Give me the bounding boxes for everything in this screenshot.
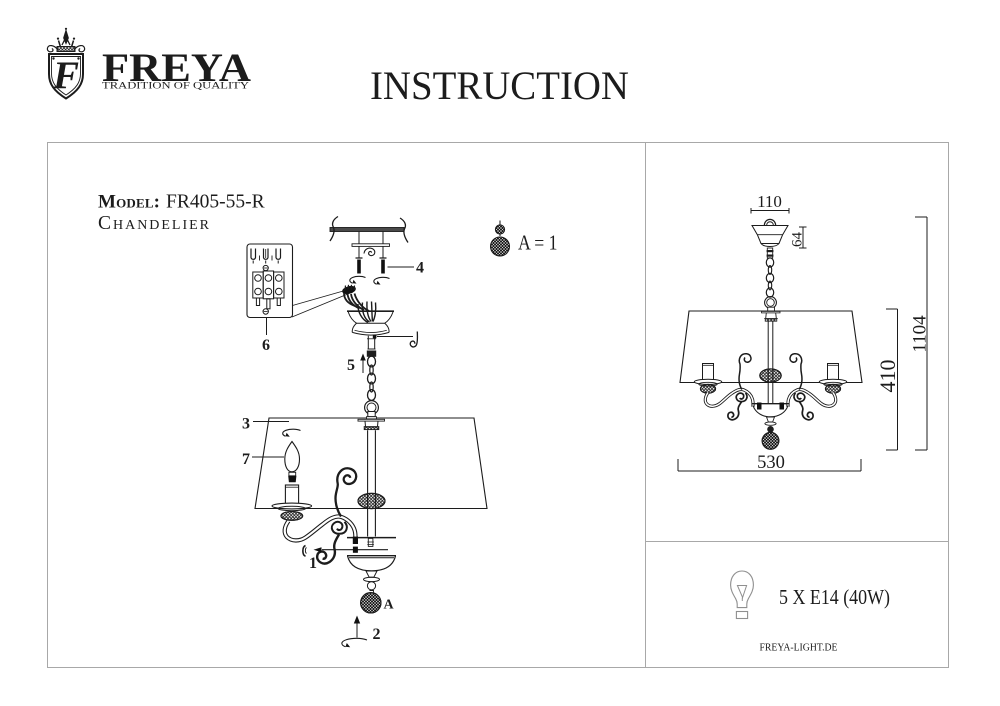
svg-text:4: 4 — [416, 260, 424, 277]
svg-text:Chandelier: Chandelier — [98, 213, 210, 234]
svg-text:7: 7 — [242, 451, 250, 468]
svg-text:INSTRUCTION: INSTRUCTION — [370, 63, 629, 108]
svg-text:FR405-55-R: FR405-55-R — [166, 192, 265, 213]
svg-text:3: 3 — [242, 416, 250, 433]
svg-text:A = 1: A = 1 — [518, 231, 558, 255]
svg-text:1: 1 — [309, 555, 317, 572]
svg-text:530: 530 — [757, 453, 785, 473]
svg-text:F: F — [52, 54, 79, 97]
svg-text:Model:: Model: — [98, 192, 160, 213]
svg-text:5: 5 — [347, 357, 355, 374]
svg-text:64: 64 — [790, 232, 806, 248]
svg-text:410: 410 — [875, 360, 900, 393]
svg-text:FREYA-LIGHT.DE: FREYA-LIGHT.DE — [760, 642, 838, 654]
svg-text:2: 2 — [373, 626, 381, 643]
svg-text:5 X E14 (40W): 5 X E14 (40W) — [779, 585, 890, 609]
svg-text:6: 6 — [262, 337, 270, 354]
svg-text:110: 110 — [757, 192, 782, 211]
svg-text:TRADITION OF QUALITY: TRADITION OF QUALITY — [102, 81, 250, 91]
svg-text:1104: 1104 — [910, 315, 931, 353]
svg-text:A: A — [384, 598, 395, 613]
